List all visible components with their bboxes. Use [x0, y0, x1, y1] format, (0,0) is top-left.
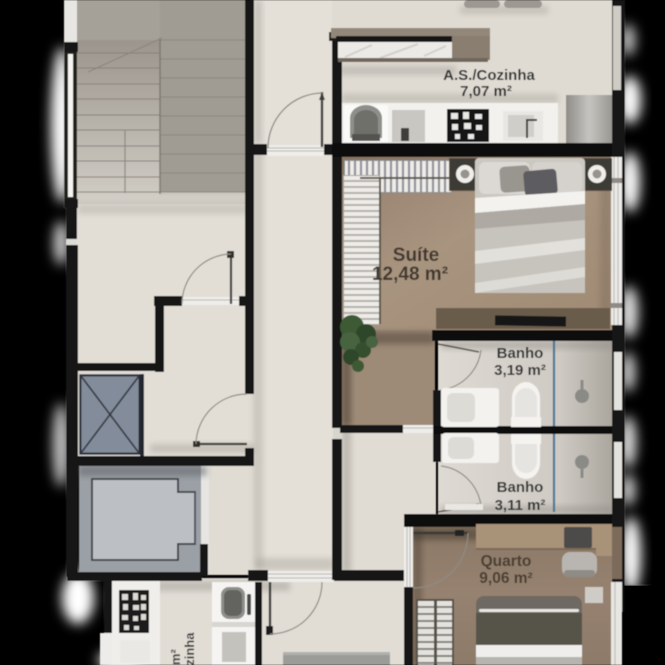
- svg-text:Quarto: Quarto: [481, 553, 532, 570]
- svg-text:A.S./Cozinha: A.S./Cozinha: [182, 632, 197, 665]
- svg-text:9,06 m²: 9,06 m²: [479, 570, 532, 587]
- svg-text:6,00 m²: 6,00 m²: [168, 649, 183, 665]
- svg-text:Suíte: Suíte: [393, 245, 439, 266]
- svg-text:Banho: Banho: [497, 479, 544, 496]
- svg-text:Banho: Banho: [497, 345, 544, 362]
- svg-text:7,07 m²: 7,07 m²: [460, 83, 512, 100]
- svg-text:12,48 m²: 12,48 m²: [372, 264, 448, 285]
- svg-text:3,11 m²: 3,11 m²: [495, 497, 546, 514]
- svg-text:A.S./Cozinha: A.S./Cozinha: [443, 67, 535, 84]
- svg-text:3,19 m²: 3,19 m²: [494, 362, 546, 379]
